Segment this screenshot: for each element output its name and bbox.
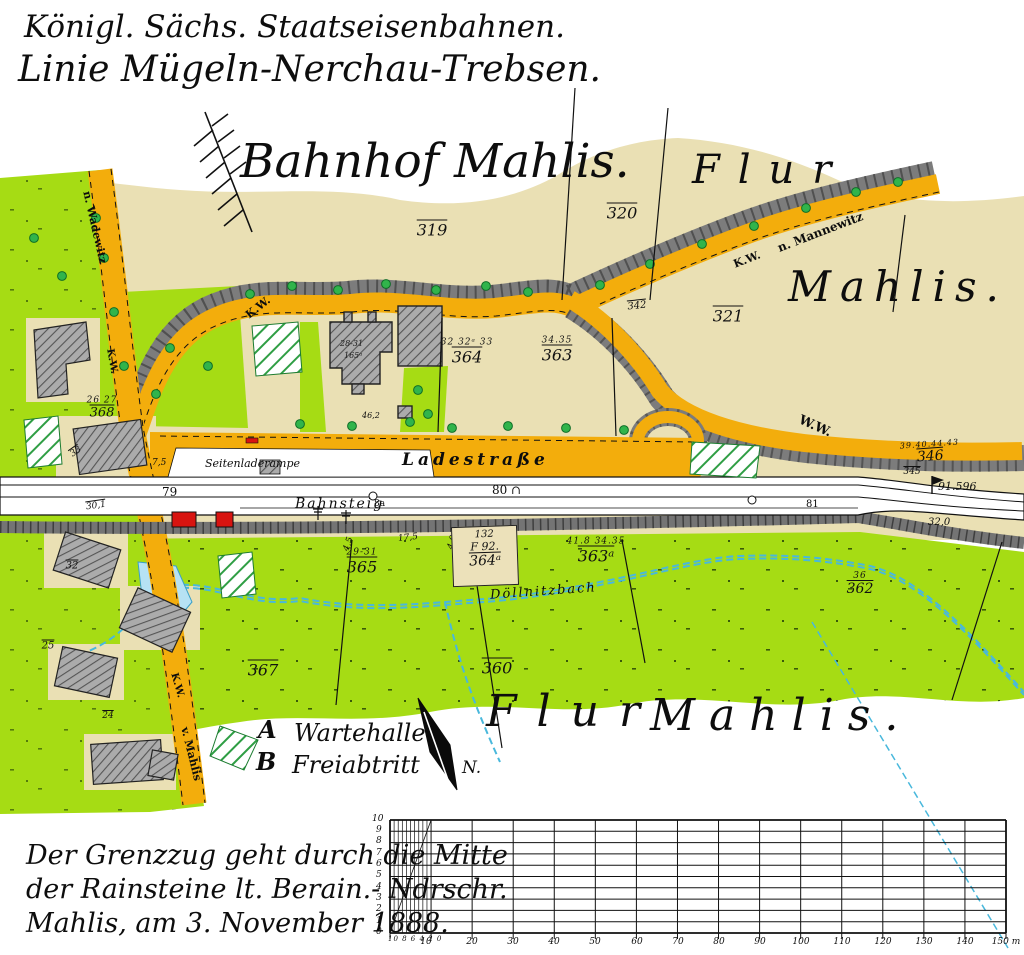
freiabtritt-building: [216, 512, 233, 527]
scale-left-1: 1: [376, 917, 382, 926]
parcel-362: 36362: [847, 571, 874, 597]
ramp-height: 7,5: [152, 459, 166, 468]
parcel-367: 367: [248, 661, 279, 680]
map-canvas: Königl. Sächs. Staatseisenbahnen. Linie …: [0, 0, 1024, 955]
scale-left-5: 5: [376, 871, 382, 880]
track-marker: [748, 496, 756, 504]
parcel-345: 345: [903, 467, 920, 477]
parcel-24: 24: [102, 711, 113, 721]
map-title: Bahnhof Mahlis.: [240, 138, 630, 185]
legend-label-freiabtritt: Freiabtritt: [292, 753, 420, 777]
parcel-321: 321: [713, 307, 744, 326]
legend-key-a: A: [258, 718, 277, 742]
wartehalle-building: [172, 512, 196, 527]
km-80: 80 ∩: [492, 484, 521, 496]
survey-note-line1: Der Grenzzug geht durch die Mitte: [26, 842, 508, 869]
scale-tick-110: 110: [833, 938, 850, 947]
scale-tick-130: 130: [915, 938, 932, 947]
scale-left-3: 3: [376, 894, 382, 903]
km-8a: 8a: [374, 500, 385, 509]
km-stone-label: 91.596: [938, 481, 977, 492]
elevation-label: 32,0: [928, 518, 950, 528]
parcel-320: 320: [607, 204, 638, 223]
scale-sub-labels: 10 8 6 4 2 0: [388, 936, 442, 943]
authority-title: Königl. Sächs. Staatseisenbahnen.: [24, 12, 565, 43]
scale-tick-20: 20: [466, 938, 477, 947]
scale-left-6: 6: [376, 860, 382, 869]
parcel-342: 342: [627, 300, 647, 313]
parcel-346: 39.40.44.43346: [900, 437, 961, 466]
ladestrasse-label: Ladestraße: [402, 452, 549, 469]
km-79: 79: [162, 486, 177, 498]
scale-tick-60: 60: [631, 938, 642, 947]
scale-tick-100: 100: [792, 938, 809, 947]
scale-tick-80: 80: [713, 938, 724, 947]
flur-label-top: Flur: [692, 150, 849, 190]
parcel-365: 29-31365: [347, 548, 378, 577]
mahlis-label-bottom: Mahlis.: [650, 694, 912, 738]
flur-label-bottom: Flur: [486, 690, 660, 734]
parcel-364: 32 32ᵃ 33364: [441, 338, 493, 367]
parcel-32: 32: [66, 561, 79, 572]
survey-note-line2: der Rainsteine lt. Berain.- Ndrschr.: [26, 876, 508, 903]
scale-left-8: 8: [376, 837, 382, 846]
scale-tick-70: 70: [672, 938, 683, 947]
scale-tick-90: 90: [754, 938, 765, 947]
station-building-label1: 28-31: [340, 340, 363, 348]
parcel-368: 26 27368: [87, 396, 118, 421]
north-label: N.: [462, 760, 481, 777]
parcel-363a: 41.8 34.35363ᵃ: [567, 537, 626, 566]
legend-label-wartehalle: Wartehalle: [294, 721, 426, 745]
scale-tick-10: 10: [420, 938, 431, 947]
scale-end-label: 150 m: [992, 938, 1021, 947]
scale-left-4: 4: [376, 883, 382, 892]
scale-tick-40: 40: [548, 938, 559, 947]
parcel-363: 34.35363: [542, 336, 573, 365]
scale-tick-140: 140: [956, 938, 973, 947]
scale-tick-120: 120: [874, 938, 891, 947]
line-title: Linie Mügeln-Nerchau-Trebsen.: [18, 52, 601, 88]
scale-tick-50: 50: [589, 938, 600, 947]
seitenladerampe-label: Seitenladerampe: [205, 458, 300, 469]
scale-left-0: 0: [376, 928, 382, 937]
station-building-label2: 165ᵃ: [344, 352, 362, 360]
legend-key-b: B: [256, 750, 276, 774]
parcel-364a-box: 132 F 92. 364ᵃ: [451, 525, 519, 587]
km-81: 81: [806, 500, 819, 510]
parcel-360: 360: [482, 659, 513, 678]
scale-left-10: 10: [372, 815, 383, 824]
scale-tick-30: 30: [507, 938, 518, 947]
scale-left-2: 2: [376, 905, 382, 914]
parcel-319: 319: [417, 221, 448, 240]
scale-left-9: 9: [376, 826, 382, 835]
mahlis-label-right: Mahlis.: [788, 266, 1008, 308]
parcel-25: 25: [42, 641, 55, 652]
small-red-structure: [246, 438, 258, 443]
measure-462: 46,2: [362, 412, 380, 420]
scale-left-7: 7: [376, 849, 382, 858]
survey-note-line3: Mahlis, am 3. November 1888.: [26, 910, 449, 937]
bahnsteig-label: Bahnsteig: [295, 497, 384, 511]
